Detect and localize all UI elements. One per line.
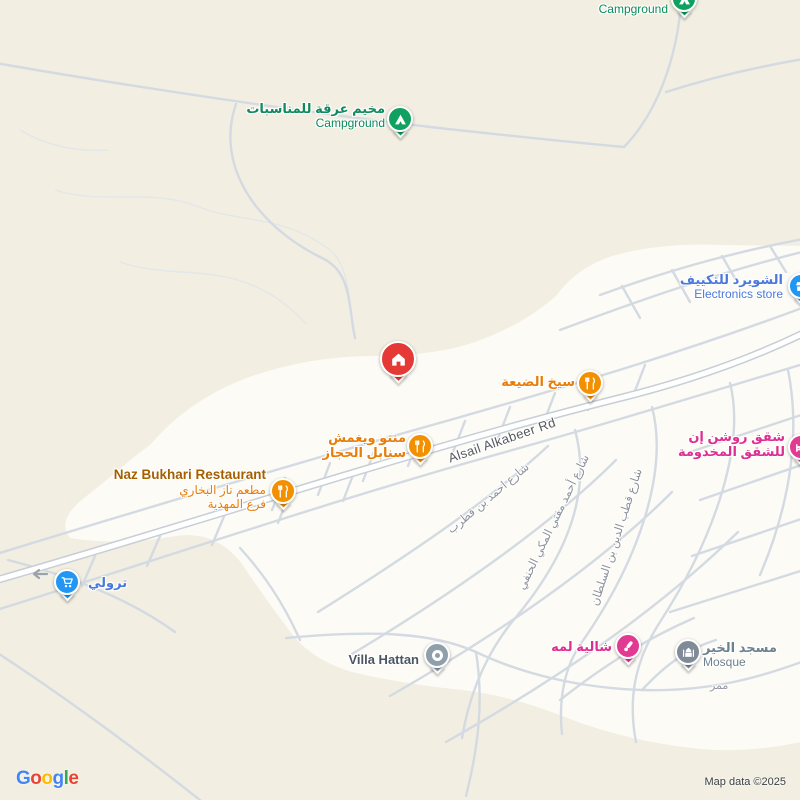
naz-bukhari-label[interactable]: Naz Bukhari Restaurant مطعم ناز البخاري … (114, 467, 266, 511)
shop-icon (795, 280, 800, 293)
street-label-mamar: ممر (710, 679, 728, 692)
trolley-label[interactable]: ترولي (88, 575, 127, 590)
restaurant-icon (584, 377, 597, 390)
restaurant-icon (277, 485, 290, 498)
restaurant-icon (414, 440, 427, 453)
roshan-inn-pin[interactable] (786, 434, 800, 470)
mosque-icon (682, 646, 695, 659)
electronics-store-label[interactable]: الشويرد للتكييف Electronics store (680, 272, 783, 301)
logo-letter: o (30, 768, 41, 789)
donut-icon (432, 650, 443, 661)
villa-hattan-label[interactable]: Villa Hattan (348, 652, 419, 667)
bed-icon (795, 441, 800, 454)
campground-arqa-pin[interactable] (385, 106, 415, 142)
seekh-aldeyah-pin[interactable] (575, 370, 605, 406)
logo-letter: e (68, 768, 78, 789)
shopping-cart-icon (61, 576, 74, 589)
map-attribution: Map data ©2025 (705, 776, 787, 788)
chalet-lamah-label[interactable]: شالية لمه (551, 639, 612, 654)
villa-hattan-marker[interactable] (422, 642, 452, 678)
campground-top-pin[interactable] (669, 0, 699, 22)
campground-arqa-label[interactable]: مخيم عرقة للمناسبات Campground (246, 101, 385, 130)
logo-letter: g (53, 768, 64, 789)
house-icon (390, 351, 407, 368)
mosque-label[interactable]: مسجد الخير Mosque (703, 640, 777, 669)
google-logo[interactable]: Google (16, 768, 78, 790)
manto-label[interactable]: منتو ويغمش سنابل الحجاز (322, 430, 406, 461)
tent-icon (394, 113, 407, 126)
manto-pin[interactable] (405, 433, 435, 469)
campground-top-label[interactable]: Campground (599, 2, 668, 16)
leisure-icon (622, 640, 635, 653)
roshan-inn-label[interactable]: شقق روشن إن للشقق المخدومة (678, 429, 785, 460)
logo-letter: o (41, 768, 52, 789)
property-location-pin[interactable] (377, 341, 419, 387)
seekh-aldeyah-label[interactable]: سيخ الضيعة (501, 374, 575, 389)
electronics-store-pin[interactable] (786, 273, 800, 309)
chalet-lamah-pin[interactable] (613, 633, 643, 669)
map-canvas[interactable]: Alsail Alkabeer Rd شارع احمد بن قطرب شار… (0, 0, 800, 800)
trolley-pin[interactable] (52, 569, 82, 605)
mosque-marker[interactable] (673, 639, 703, 675)
logo-letter: G (16, 768, 30, 789)
tent-icon (678, 0, 691, 6)
naz-bukhari-pin[interactable] (268, 478, 298, 514)
